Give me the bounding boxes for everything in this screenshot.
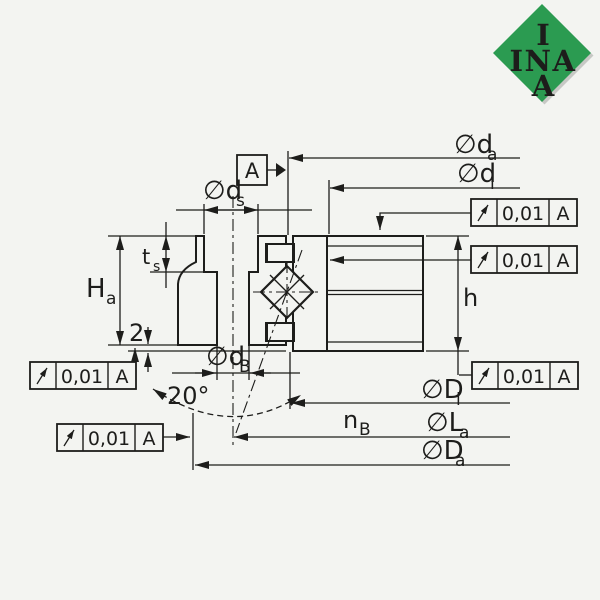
- label-ds-sub: s: [236, 191, 245, 211]
- label-dB-sub: B: [239, 357, 251, 377]
- label-La: ∅L: [426, 408, 464, 438]
- label-nB: n: [343, 406, 358, 434]
- tolerance-value: 0,01: [503, 366, 545, 388]
- label-ts: t: [142, 245, 150, 269]
- label-Da-sub: a: [455, 451, 465, 471]
- tolerance-value: 0,01: [502, 203, 544, 225]
- label-Ha: H: [86, 274, 106, 304]
- datum-flag-label: A: [245, 159, 260, 183]
- tolerance-datum: A: [116, 366, 129, 388]
- tolerance-datum: A: [557, 250, 570, 272]
- tolerance-value: 0,01: [88, 428, 130, 450]
- label-nB-sub: B: [359, 420, 371, 440]
- label-ts-sub: s: [153, 259, 160, 275]
- tolerance-datum: A: [557, 203, 570, 225]
- label-Di-sub: i: [456, 390, 461, 410]
- logo-letter-bottom: A: [531, 69, 555, 103]
- tolerance-value: 0,01: [61, 366, 103, 388]
- label-Ha-sub: a: [106, 289, 116, 309]
- bearing-drawing-page: I INA A: [0, 0, 600, 600]
- label-h: h: [463, 284, 478, 312]
- tolerance-datum: A: [143, 428, 156, 450]
- bearing-drawing: I INA A: [0, 0, 600, 600]
- label-angle: 20°: [167, 382, 210, 410]
- tolerance-value: 0,01: [502, 250, 544, 272]
- label-di-sub: i: [490, 174, 495, 194]
- label-offset: 2: [129, 319, 144, 347]
- tolerance-datum: A: [558, 366, 571, 388]
